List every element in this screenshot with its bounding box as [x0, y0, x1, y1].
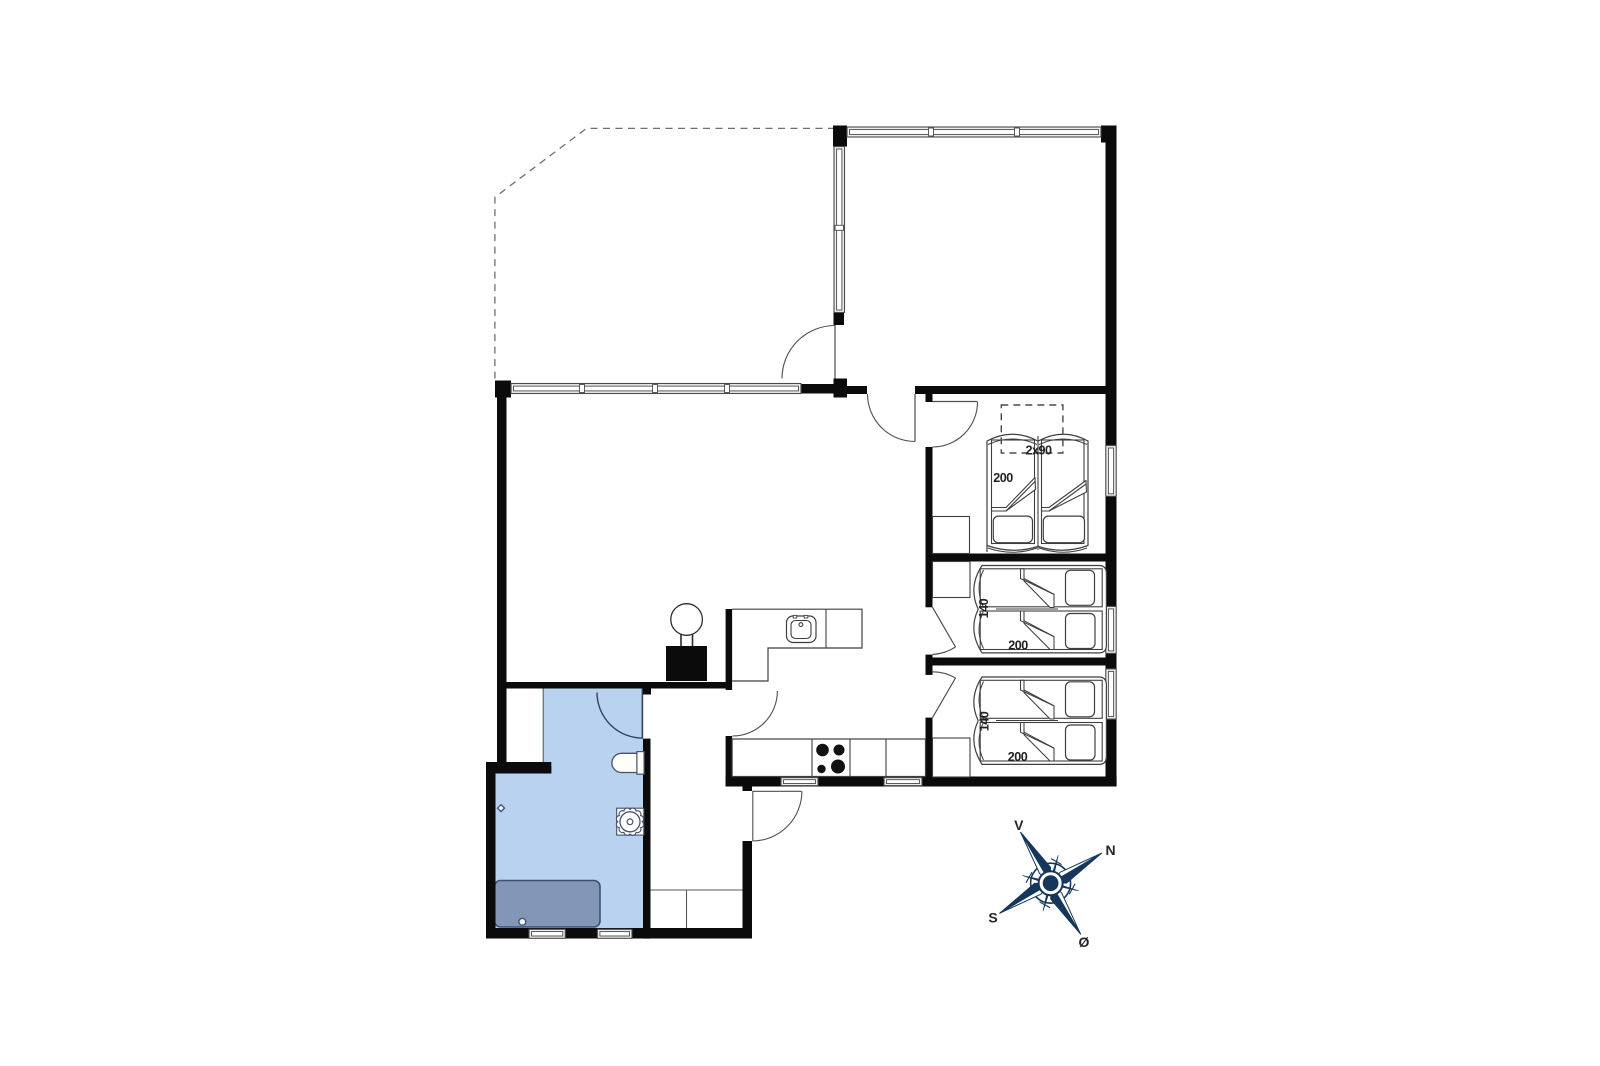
svg-text:140: 140 — [978, 711, 992, 731]
svg-text:2x90: 2x90 — [1025, 444, 1052, 458]
svg-text:Ø: Ø — [1078, 934, 1089, 950]
svg-text:200: 200 — [993, 471, 1013, 485]
svg-text:N: N — [1106, 842, 1116, 858]
svg-text:140: 140 — [977, 598, 991, 618]
svg-text:V: V — [1014, 817, 1024, 833]
svg-text:S: S — [988, 910, 997, 926]
svg-text:200: 200 — [1008, 639, 1028, 653]
svg-text:200: 200 — [1008, 750, 1028, 764]
